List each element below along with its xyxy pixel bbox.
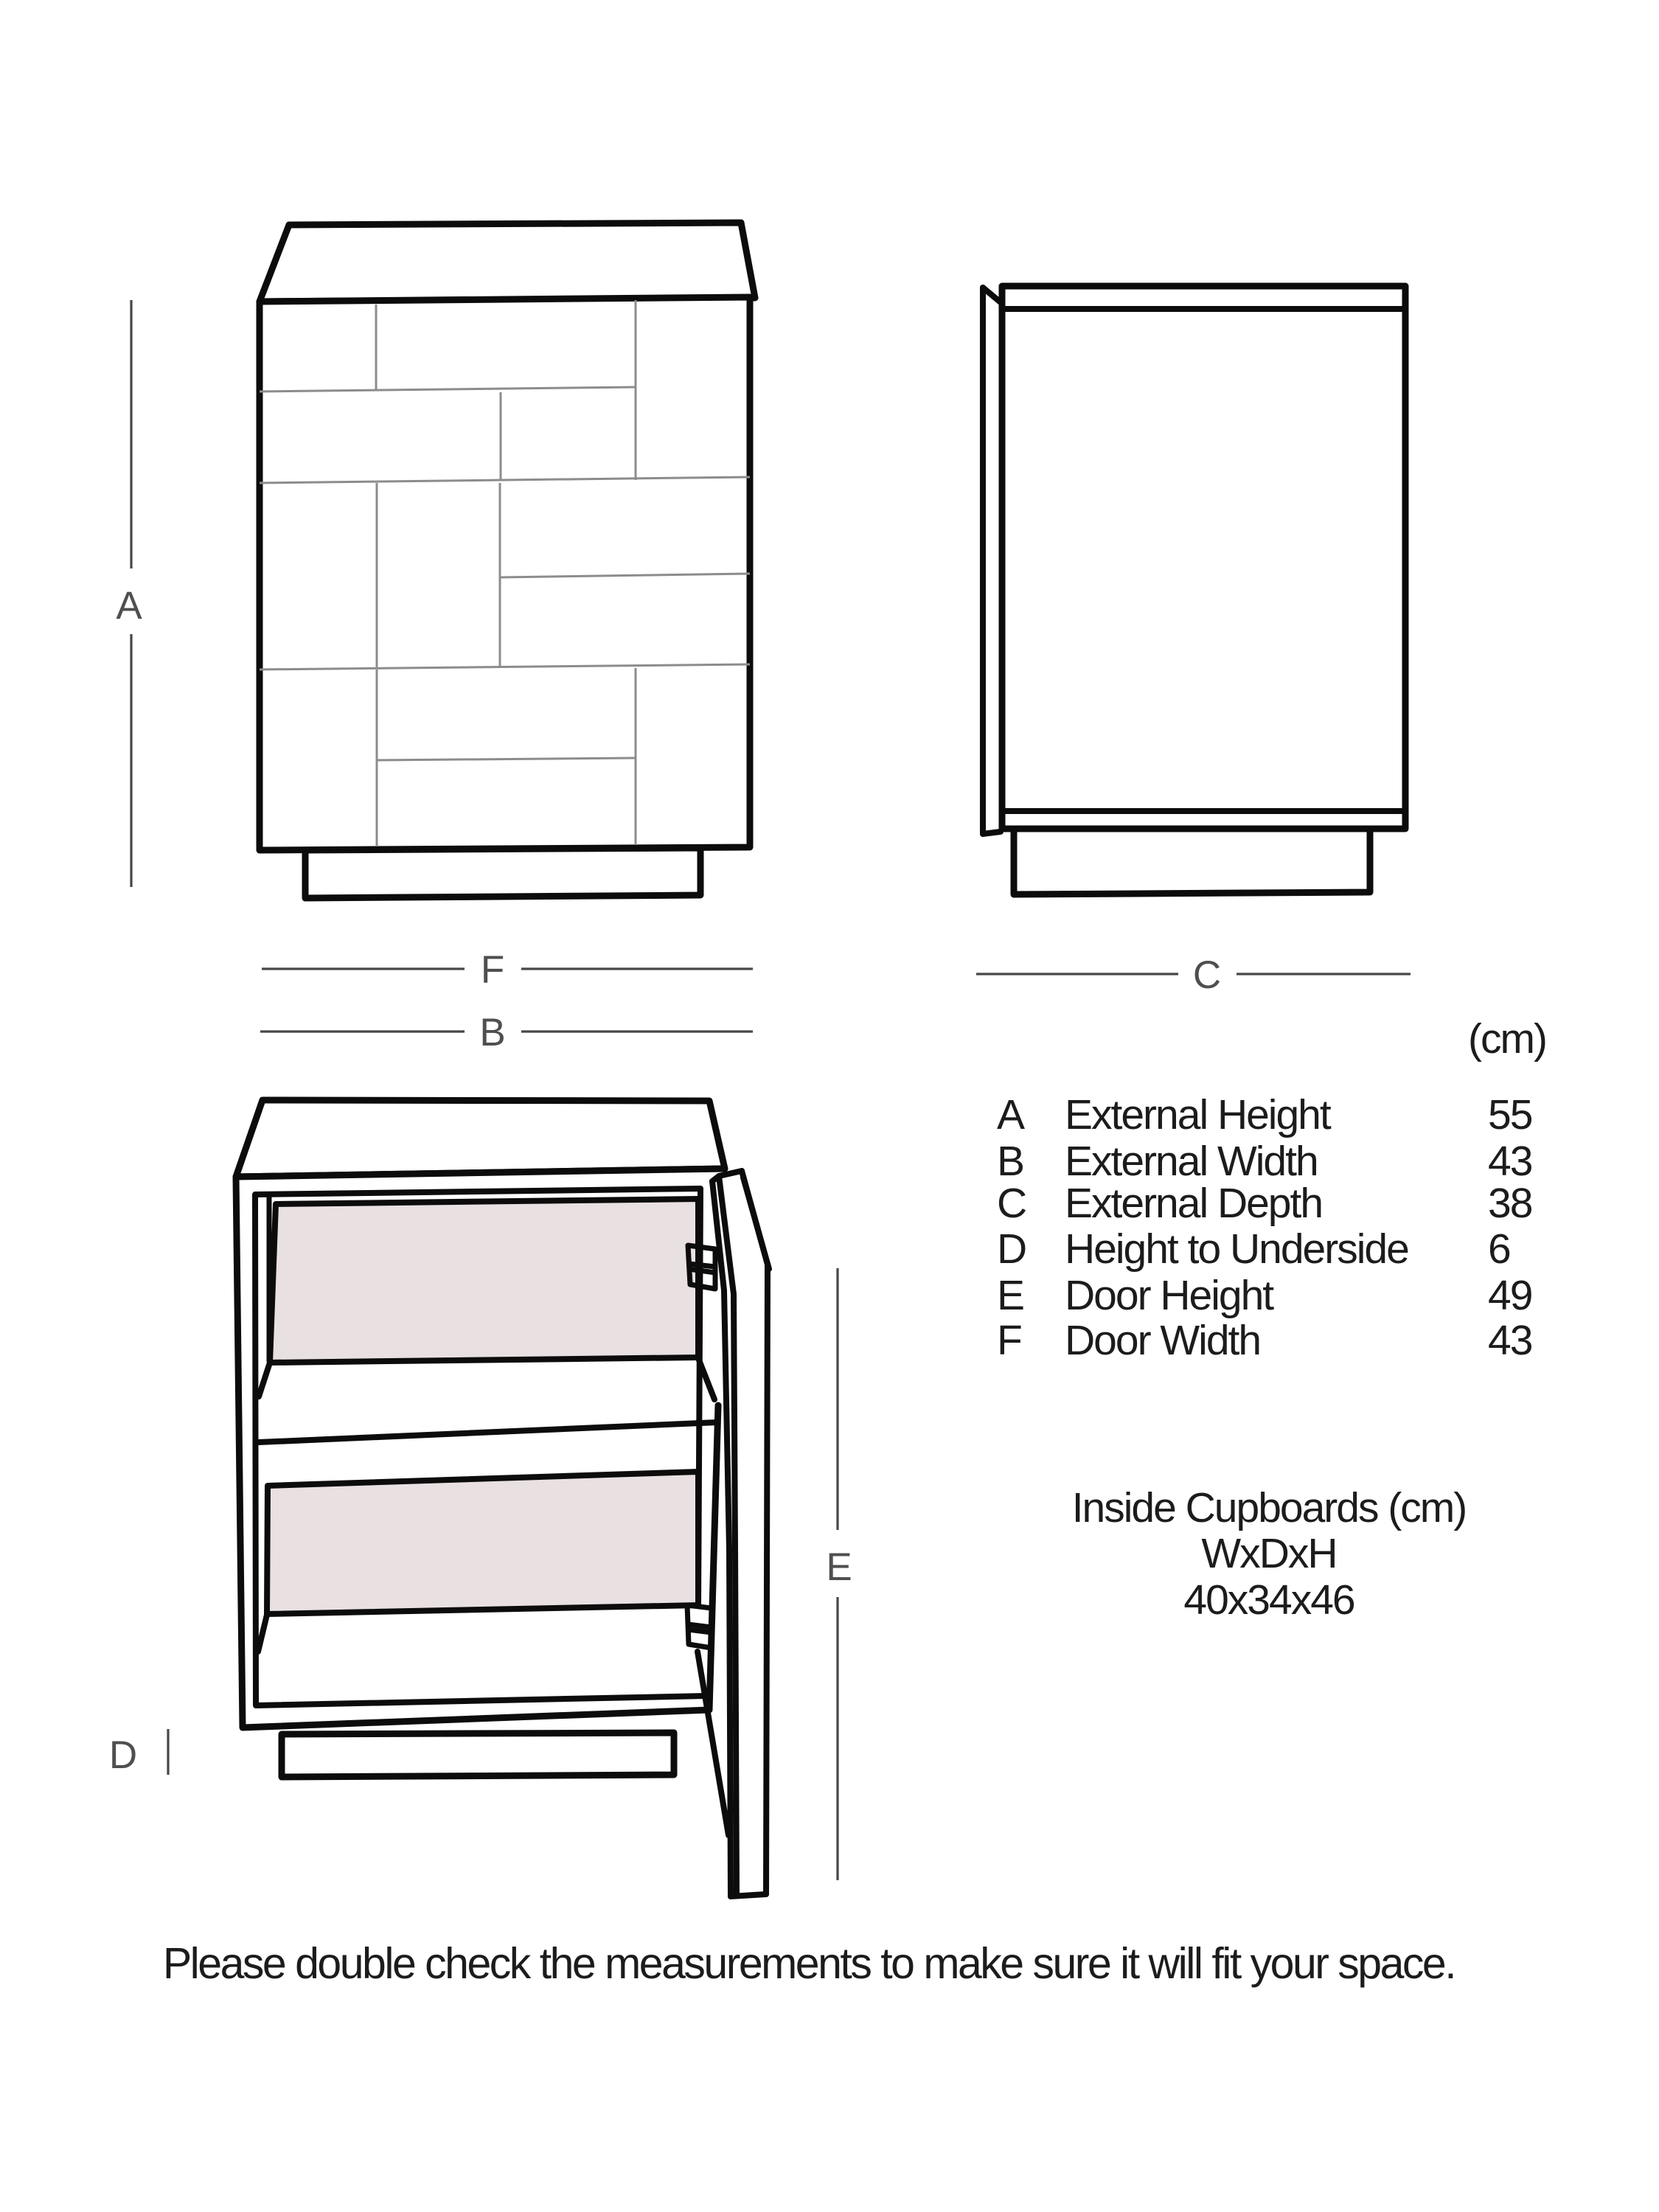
svg-text:Inside Cupboards (cm): Inside Cupboards (cm) — [1072, 1484, 1467, 1531]
svg-text:Door Width: Door Width — [1065, 1317, 1260, 1364]
svg-text:A: A — [997, 1091, 1025, 1138]
svg-text:External Height: External Height — [1065, 1091, 1332, 1138]
svg-text:E: E — [826, 1545, 852, 1589]
svg-text:40x34x46: 40x34x46 — [1183, 1576, 1354, 1624]
svg-text:External Width: External Width — [1065, 1138, 1318, 1185]
svg-text:WxDxH: WxDxH — [1201, 1530, 1336, 1577]
svg-text:F: F — [997, 1317, 1021, 1364]
svg-text:55: 55 — [1488, 1091, 1532, 1138]
svg-text:49: 49 — [1488, 1272, 1531, 1319]
svg-text:F: F — [481, 948, 504, 992]
svg-text:43: 43 — [1488, 1317, 1532, 1364]
svg-text:C: C — [997, 1180, 1026, 1227]
svg-text:B: B — [479, 1011, 505, 1054]
svg-text:38: 38 — [1488, 1180, 1532, 1227]
svg-text:C: C — [1193, 953, 1221, 997]
svg-text:Door Height: Door Height — [1065, 1272, 1274, 1319]
svg-text:Height to Underside: Height to Underside — [1065, 1225, 1408, 1273]
svg-text:External Depth: External Depth — [1065, 1180, 1322, 1227]
svg-text:D: D — [109, 1733, 137, 1777]
svg-text:E: E — [997, 1272, 1023, 1319]
svg-text:Please double check the measur: Please double check the measurements to … — [163, 1939, 1455, 1988]
svg-text:B: B — [997, 1138, 1023, 1185]
svg-text:43: 43 — [1488, 1138, 1532, 1185]
svg-text:6: 6 — [1488, 1225, 1510, 1273]
svg-text:A: A — [116, 584, 142, 627]
svg-text:D: D — [997, 1225, 1026, 1273]
svg-text:(cm): (cm) — [1468, 1015, 1546, 1062]
